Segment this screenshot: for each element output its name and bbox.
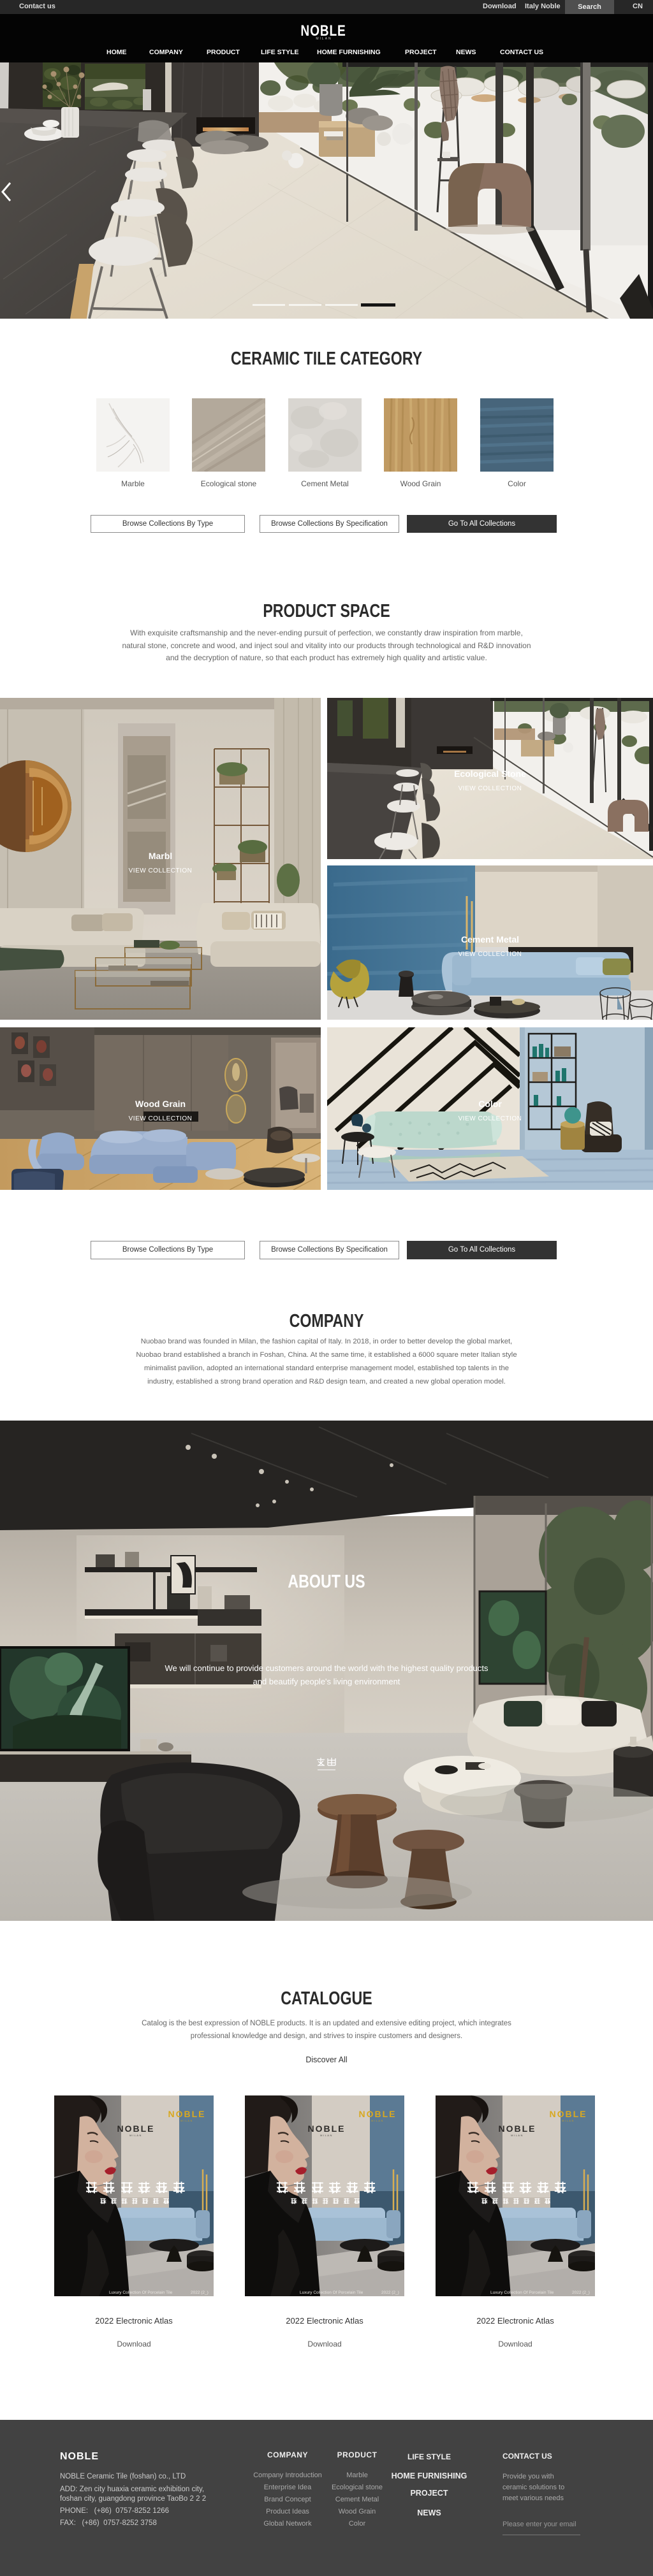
svg-text:Luxury Collection Of Porcelain: Luxury Collection Of Porcelain Tile <box>300 2290 363 2295</box>
svg-text:NOBLE: NOBLE <box>168 2109 206 2119</box>
svg-text:Luxury Collection Of Porcelain: Luxury Collection Of Porcelain Tile <box>109 2290 173 2295</box>
svg-text:Luxury Collection Of Porcelain: Luxury Collection Of Porcelain Tile <box>490 2290 554 2295</box>
svg-text:MILAN: MILAN <box>129 2134 142 2137</box>
svg-text:2022 (2_): 2022 (2_) <box>381 2290 399 2295</box>
svg-text:2022 (2_): 2022 (2_) <box>191 2290 209 2295</box>
svg-text:MILAN: MILAN <box>562 2119 575 2122</box>
svg-text:MILAN: MILAN <box>180 2119 193 2122</box>
svg-text:NOBLE: NOBLE <box>117 2124 155 2134</box>
svg-text:NOBLE: NOBLE <box>499 2124 536 2134</box>
svg-text:MILAN: MILAN <box>511 2134 524 2137</box>
svg-text:MILAN: MILAN <box>371 2119 384 2122</box>
svg-text:MILAN: MILAN <box>320 2134 333 2137</box>
svg-text:NOBLE: NOBLE <box>550 2109 587 2119</box>
svg-text:NOBLE: NOBLE <box>308 2124 346 2134</box>
svg-text:2022 (2_): 2022 (2_) <box>572 2290 590 2295</box>
svg-text:NOBLE: NOBLE <box>359 2109 397 2119</box>
